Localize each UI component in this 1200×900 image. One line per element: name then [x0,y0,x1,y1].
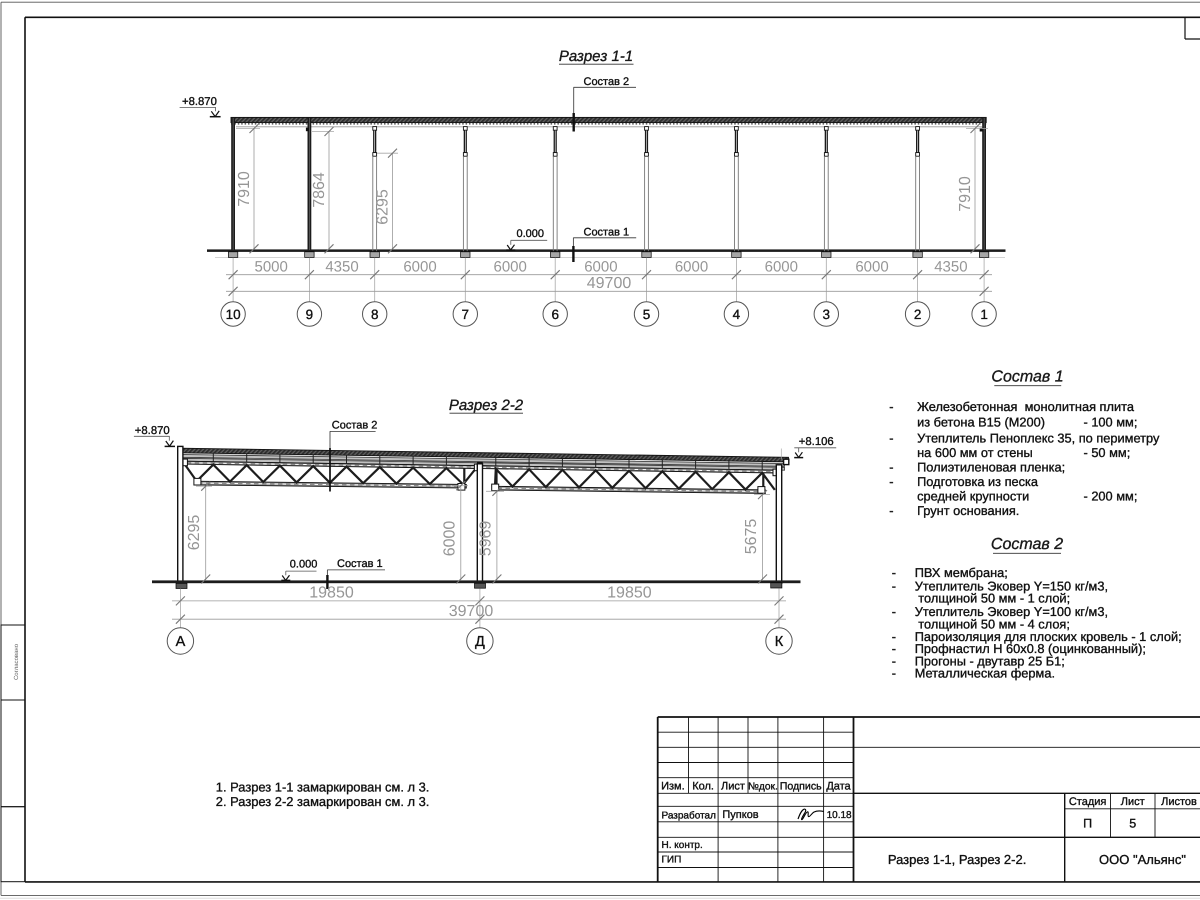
svg-text:39700: 39700 [449,603,494,620]
svg-text:6000: 6000 [855,258,888,275]
svg-text:-: - [889,503,893,518]
svg-text:Полиэтиленовая пленка;: Полиэтиленовая пленка; [917,459,1065,474]
svg-text:1: 1 [980,307,988,322]
svg-text:- 50 мм;: - 50 мм; [1084,445,1131,460]
svg-text:+8.870: +8.870 [135,425,170,437]
svg-text:Разрез 1-1: Разрез 1-1 [559,48,633,65]
svg-text:7864: 7864 [311,172,328,208]
svg-text:7910: 7910 [236,171,253,207]
svg-text:6: 6 [551,307,559,322]
svg-text:9: 9 [306,307,314,322]
svg-text:4350: 4350 [325,258,358,275]
svg-text:5000: 5000 [255,258,288,275]
svg-text:6000: 6000 [765,258,798,275]
svg-text:Состав 2: Состав 2 [584,76,630,88]
svg-text:6295: 6295 [374,189,391,225]
svg-text:4: 4 [733,307,741,322]
svg-text:+8.870: +8.870 [182,96,217,108]
svg-text:5969: 5969 [478,521,495,557]
svg-text:ГИП: ГИП [662,855,682,866]
svg-text:6295: 6295 [186,515,203,551]
svg-text:2: 2 [914,307,922,322]
svg-text:5: 5 [643,307,651,322]
svg-text:№док.: №док. [748,782,778,793]
svg-text:-: - [889,459,893,474]
svg-text:Подготовка из песка: Подготовка из песка [917,474,1039,489]
svg-text:Дата: Дата [826,781,851,793]
svg-text:0.000: 0.000 [517,228,545,240]
svg-text:19850: 19850 [607,585,652,602]
svg-text:8: 8 [371,307,379,322]
svg-text:ООО "Альянс": ООО "Альянс" [1099,852,1186,867]
svg-text:Лист: Лист [721,781,745,793]
svg-text:-: - [889,399,893,414]
svg-text:6000: 6000 [675,258,708,275]
svg-text:Состав 1: Состав 1 [337,558,383,570]
svg-text:Железобетонная монолитная пли: Железобетонная монолитная плита [917,399,1135,414]
svg-text:А: А [176,634,186,650]
svg-text:-: - [889,474,893,489]
svg-text:из бетона В15 (М200): из бетона В15 (М200) [917,415,1045,430]
svg-text:К: К [775,634,784,650]
svg-text:Д: Д [475,634,485,650]
svg-text:на 600 мм от стены: на 600 мм от стены [917,445,1033,460]
svg-text:-: - [889,430,893,445]
svg-text:Согласовано: Согласовано [13,643,20,680]
svg-text:Пупков: Пупков [722,809,758,821]
svg-text:- 200 мм;: - 200 мм; [1084,488,1138,503]
svg-text:Лист: Лист [1121,796,1145,808]
svg-text:Разработал: Разработал [662,811,717,822]
svg-text:7910: 7910 [957,176,974,212]
svg-text:-: - [892,578,896,593]
svg-text:Н. контр.: Н. контр. [662,840,703,851]
svg-text:Изм.: Изм. [661,781,685,793]
svg-text:Листов: Листов [1161,796,1197,808]
svg-text:Разрез 2-2: Разрез 2-2 [449,397,524,414]
svg-text:10: 10 [226,307,241,322]
svg-text:Разрез 1-1, Разрез 2-2.: Разрез 1-1, Разрез 2-2. [888,852,1026,867]
svg-text:средней крупности: средней крупности [917,488,1029,503]
svg-text:Состав 1: Состав 1 [584,227,630,239]
svg-text:0.000: 0.000 [290,558,318,570]
svg-text:6000: 6000 [441,521,458,557]
svg-text:Состав 1: Состав 1 [991,369,1063,386]
svg-text:П: П [1083,817,1092,831]
svg-text:Состав 2: Состав 2 [991,536,1063,553]
svg-text:Состав 2: Состав 2 [332,420,378,432]
svg-text:3: 3 [823,307,831,322]
svg-text:Металлическая ферма.: Металлическая ферма. [915,665,1055,680]
svg-text:49700: 49700 [587,275,632,292]
svg-text:+8.106: +8.106 [799,436,834,448]
svg-text:2. Разрез 2-2 замаркирован см.: 2. Разрез 2-2 замаркирован см. л 3. [216,794,430,809]
svg-text:5675: 5675 [743,519,760,555]
svg-text:4350: 4350 [934,258,967,275]
svg-text:Утеплитель Пеноплекс 35, по пе: Утеплитель Пеноплекс 35, по периметру [917,430,1160,445]
svg-text:-: - [892,665,896,680]
svg-text:Кол.: Кол. [692,781,714,793]
svg-text:-: - [892,604,896,619]
svg-text:10.18: 10.18 [827,810,852,821]
svg-text:1. Разрез 1-1 замаркирован см.: 1. Разрез 1-1 замаркирован см. л 3. [216,780,430,795]
svg-text:Стадия: Стадия [1069,796,1107,808]
svg-text:6000: 6000 [494,258,527,275]
svg-text:Грунт основания.: Грунт основания. [917,503,1019,518]
svg-text:19850: 19850 [309,585,354,602]
svg-text:6000: 6000 [584,258,617,275]
svg-text:5: 5 [1129,817,1136,831]
svg-text:Подпись: Подпись [780,781,822,793]
svg-text:- 100 мм;: - 100 мм; [1084,415,1138,430]
svg-text:6000: 6000 [403,258,436,275]
svg-text:7: 7 [462,307,470,322]
